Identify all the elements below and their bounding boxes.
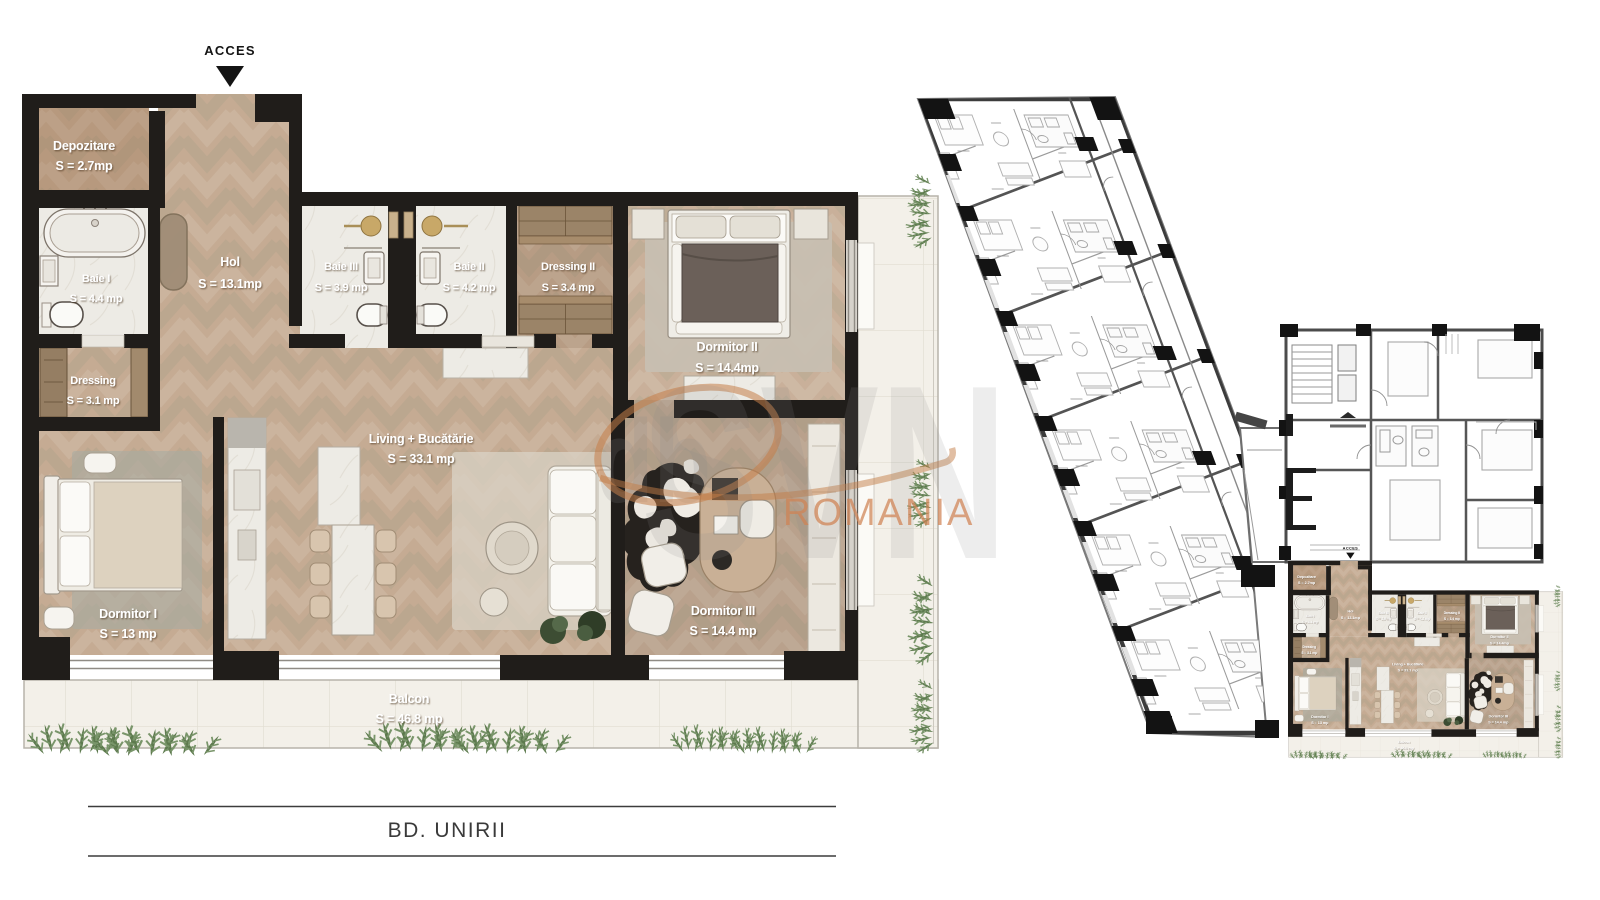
- svg-text:S = 14.4 mp: S = 14.4 mp: [690, 624, 757, 638]
- svg-text:Dressing II: Dressing II: [541, 261, 595, 273]
- svg-text:S = 46.8 mp: S = 46.8 mp: [376, 712, 443, 726]
- svg-text:Balcon: Balcon: [389, 692, 429, 706]
- svg-text:SVN: SVN: [641, 333, 1008, 611]
- svg-text:Baie I: Baie I: [82, 273, 110, 285]
- svg-text:Dressing: Dressing: [70, 375, 115, 387]
- svg-text:Dormitor I: Dormitor I: [99, 607, 157, 621]
- svg-text:S = 3.1 mp: S = 3.1 mp: [67, 395, 120, 407]
- svg-text:S = 3.4 mp: S = 3.4 mp: [542, 282, 595, 294]
- svg-text:S = 3.9 mp: S = 3.9 mp: [315, 282, 368, 294]
- svg-text:BD. UNIRII: BD. UNIRII: [388, 819, 507, 842]
- svg-text:Depozitare: Depozitare: [53, 139, 115, 153]
- svg-text:Hol: Hol: [220, 255, 240, 269]
- svg-text:S = 13 mp: S = 13 mp: [100, 627, 157, 641]
- svg-text:S = 4.4 mp: S = 4.4 mp: [70, 293, 123, 305]
- svg-text:S = 4.2 mp: S = 4.2 mp: [443, 282, 496, 294]
- svg-text:S = 2.7mp: S = 2.7mp: [56, 159, 113, 173]
- svg-text:Baie III: Baie III: [324, 261, 358, 273]
- svg-text:S = 33.1 mp: S = 33.1 mp: [388, 452, 455, 466]
- svg-text:ROMANIA: ROMANIA: [783, 492, 974, 534]
- svg-text:Living + Bucătărie: Living + Bucătărie: [369, 432, 474, 446]
- svg-text:Baie II: Baie II: [453, 261, 484, 273]
- svg-text:S = 13.1mp: S = 13.1mp: [198, 277, 262, 291]
- svg-text:ACCES: ACCES: [204, 43, 256, 58]
